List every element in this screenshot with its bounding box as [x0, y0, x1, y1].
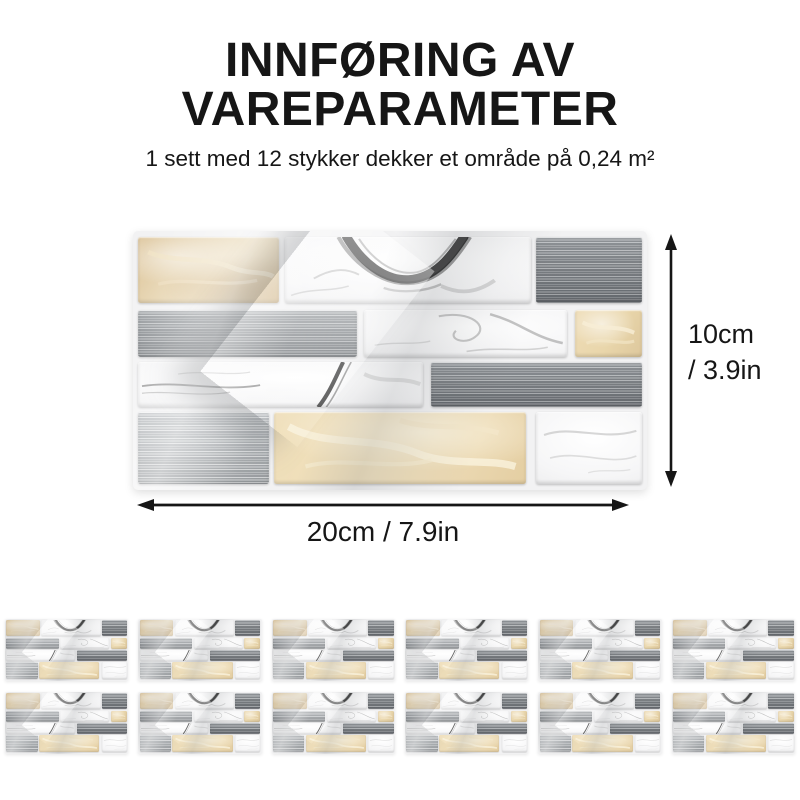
brick-beige-light — [172, 662, 232, 679]
brick-steel — [140, 638, 192, 649]
brick-marble-soft — [368, 662, 393, 679]
brick-steel-dark — [102, 693, 127, 709]
brick-steel-dark — [502, 620, 527, 636]
coverage-subtitle: 1 sett med 12 stykker dekker et område p… — [0, 146, 800, 172]
height-dimension-arrow — [659, 234, 683, 487]
brick-marble-vein — [194, 638, 243, 649]
brick-beige-light — [706, 662, 766, 679]
brick-marble-soft — [635, 662, 660, 679]
main-tile-panel-slot — [133, 231, 647, 490]
tile-set-grid — [5, 619, 795, 754]
width-dimension-arrow — [137, 493, 629, 517]
brick-beige-light — [274, 412, 526, 483]
product-infographic-page: INNFØRING AV VAREPARAMETER 1 sett med 12… — [0, 0, 800, 800]
brick-marble-swirl — [285, 237, 532, 303]
brick-steel-dark — [768, 620, 793, 636]
brick-steel-dark — [210, 650, 261, 661]
tile-panel — [138, 619, 261, 681]
brick-marble-streak — [406, 723, 474, 734]
brick-beige-light — [39, 735, 99, 752]
tile-thumbnail-12 — [672, 692, 795, 754]
brick-beige — [778, 711, 794, 722]
brick-steel-light — [138, 412, 269, 483]
brick-marble-streak — [673, 723, 741, 734]
tile-panel — [5, 619, 128, 681]
brick-beige — [244, 638, 260, 649]
tile-panel — [133, 231, 647, 490]
brick-beige-dark — [406, 693, 440, 709]
brick-beige-dark — [273, 693, 307, 709]
brick-steel-light — [6, 735, 37, 752]
brick-beige-dark — [673, 620, 707, 636]
tile-panel — [538, 692, 661, 754]
brick-steel-dark — [743, 723, 794, 734]
brick-beige-dark — [6, 693, 40, 709]
brick-steel — [673, 711, 725, 722]
brick-beige — [511, 711, 527, 722]
brick-steel-dark — [235, 620, 260, 636]
tile-panel — [405, 692, 528, 754]
brick-steel — [673, 638, 725, 649]
brick-marble-vein — [460, 711, 509, 722]
tile-thumbnail-9 — [272, 692, 395, 754]
brick-marble-soft — [768, 735, 793, 752]
brick-steel — [140, 711, 192, 722]
tile-panel — [138, 692, 261, 754]
brick-marble-swirl — [441, 693, 500, 709]
brick-beige-light — [572, 735, 632, 752]
brick-steel-light — [540, 735, 571, 752]
brick-steel-light — [140, 735, 171, 752]
brick-beige-light — [439, 735, 499, 752]
brick-beige — [244, 711, 260, 722]
brick-marble-swirl — [308, 620, 367, 636]
tile-panel — [272, 619, 395, 681]
brick-steel — [406, 638, 458, 649]
brick-steel — [273, 711, 325, 722]
brick-marble-soft — [102, 662, 127, 679]
brick-marble-vein — [194, 711, 243, 722]
brick-beige-dark — [406, 620, 440, 636]
title-line-1: INNFØRING AV — [0, 36, 800, 85]
brick-beige — [644, 638, 660, 649]
tile-thumbnail-2 — [138, 619, 261, 681]
brick-marble-vein — [364, 310, 567, 357]
tile-thumbnail-5 — [538, 619, 661, 681]
brick-marble-vein — [60, 638, 109, 649]
brick-steel-dark — [77, 650, 128, 661]
brick-beige-dark — [540, 693, 574, 709]
brick-marble-streak — [540, 650, 608, 661]
brick-marble-soft — [235, 662, 260, 679]
brick-marble-streak — [273, 723, 341, 734]
brick-steel-dark — [77, 723, 128, 734]
brick-beige-light — [706, 735, 766, 752]
brick-marble-streak — [406, 650, 474, 661]
brick-beige — [778, 638, 794, 649]
title-line-2: VAREPARAMETER — [0, 85, 800, 134]
brick-marble-vein — [727, 638, 776, 649]
brick-beige-light — [439, 662, 499, 679]
brick-beige-light — [572, 662, 632, 679]
brick-marble-streak — [6, 650, 74, 661]
brick-marble-swirl — [41, 693, 100, 709]
tile-thumbnail-7 — [5, 692, 128, 754]
brick-steel-light — [673, 735, 704, 752]
brick-beige — [644, 711, 660, 722]
brick-steel-light — [406, 735, 437, 752]
brick-beige-dark — [673, 693, 707, 709]
brick-beige-dark — [140, 693, 174, 709]
brick-marble-soft — [768, 662, 793, 679]
brick-marble-soft — [536, 412, 641, 483]
brick-beige — [511, 638, 527, 649]
brick-beige-dark — [138, 237, 279, 303]
brick-beige-dark — [273, 620, 307, 636]
brick-marble-streak — [273, 650, 341, 661]
brick-marble-soft — [635, 735, 660, 752]
brick-steel-dark — [768, 693, 793, 709]
brick-steel-light — [673, 662, 704, 679]
brick-marble-swirl — [175, 693, 234, 709]
tile-thumbnail-10 — [405, 692, 528, 754]
height-dimension-label: 10cm / 3.9in — [688, 317, 762, 388]
brick-marble-swirl — [708, 693, 767, 709]
brick-steel — [540, 711, 592, 722]
brick-marble-soft — [368, 735, 393, 752]
tile-panel — [5, 692, 128, 754]
tile-thumbnail-4 — [405, 619, 528, 681]
brick-beige — [378, 711, 394, 722]
tile-thumbnail-6 — [672, 619, 795, 681]
brick-steel-dark — [610, 723, 661, 734]
brick-steel-light — [273, 735, 304, 752]
brick-steel-dark — [477, 723, 528, 734]
page-title: INNFØRING AV VAREPARAMETER — [0, 36, 800, 135]
height-value-in: / 3.9in — [688, 353, 762, 389]
brick-steel — [273, 638, 325, 649]
brick-beige — [575, 310, 642, 357]
brick-steel-dark — [743, 650, 794, 661]
brick-steel-dark — [343, 650, 394, 661]
brick-marble-vein — [327, 711, 376, 722]
brick-beige-light — [306, 735, 366, 752]
brick-marble-vein — [727, 711, 776, 722]
brick-steel — [6, 711, 58, 722]
brick-steel — [406, 711, 458, 722]
brick-steel — [540, 638, 592, 649]
brick-steel-dark — [235, 693, 260, 709]
brick-marble-streak — [540, 723, 608, 734]
tile-panel — [405, 619, 528, 681]
tile-thumbnail-11 — [538, 692, 661, 754]
brick-beige-dark — [6, 620, 40, 636]
brick-marble-soft — [102, 735, 127, 752]
width-dimension-label: 20cm / 7.9in — [137, 516, 629, 548]
brick-steel-dark — [635, 693, 660, 709]
brick-marble-soft — [235, 735, 260, 752]
brick-marble-soft — [502, 662, 527, 679]
brick-steel-light — [140, 662, 171, 679]
brick-steel-light — [406, 662, 437, 679]
brick-beige-light — [306, 662, 366, 679]
brick-marble-soft — [502, 735, 527, 752]
brick-steel-dark — [368, 620, 393, 636]
brick-marble-swirl — [441, 620, 500, 636]
tile-thumbnail-1 — [5, 619, 128, 681]
brick-steel — [138, 310, 356, 357]
tile-panel — [272, 692, 395, 754]
brick-marble-streak — [140, 650, 208, 661]
brick-marble-swirl — [308, 693, 367, 709]
brick-marble-vein — [594, 638, 643, 649]
brick-beige-light — [172, 735, 232, 752]
brick-marble-streak — [6, 723, 74, 734]
brick-steel-dark — [477, 650, 528, 661]
brick-marble-vein — [327, 638, 376, 649]
brick-marble-swirl — [708, 620, 767, 636]
brick-marble-swirl — [575, 620, 634, 636]
brick-beige — [111, 638, 127, 649]
brick-beige-dark — [140, 620, 174, 636]
brick-marble-streak — [673, 650, 741, 661]
brick-steel-dark — [610, 650, 661, 661]
brick-steel-light — [273, 662, 304, 679]
brick-marble-streak — [138, 362, 423, 407]
brick-steel-dark — [502, 693, 527, 709]
tile-panel — [672, 692, 795, 754]
brick-beige — [111, 711, 127, 722]
brick-steel-dark — [536, 237, 641, 303]
tile-thumbnail-3 — [272, 619, 395, 681]
brick-steel-dark — [102, 620, 127, 636]
brick-marble-swirl — [175, 620, 234, 636]
tile-panel — [672, 619, 795, 681]
brick-steel-light — [6, 662, 37, 679]
brick-steel-dark — [343, 723, 394, 734]
brick-steel-light — [540, 662, 571, 679]
brick-marble-swirl — [41, 620, 100, 636]
brick-steel-dark — [431, 362, 642, 407]
brick-marble-vein — [60, 711, 109, 722]
brick-steel-dark — [210, 723, 261, 734]
brick-marble-streak — [140, 723, 208, 734]
brick-marble-vein — [460, 638, 509, 649]
brick-steel — [6, 638, 58, 649]
brick-beige — [378, 638, 394, 649]
brick-steel-dark — [368, 693, 393, 709]
brick-marble-swirl — [575, 693, 634, 709]
brick-marble-vein — [594, 711, 643, 722]
brick-steel-dark — [635, 620, 660, 636]
brick-beige-dark — [540, 620, 574, 636]
tile-panel — [538, 619, 661, 681]
brick-beige-light — [39, 662, 99, 679]
tile-thumbnail-8 — [138, 692, 261, 754]
height-value-cm: 10cm — [688, 317, 762, 353]
